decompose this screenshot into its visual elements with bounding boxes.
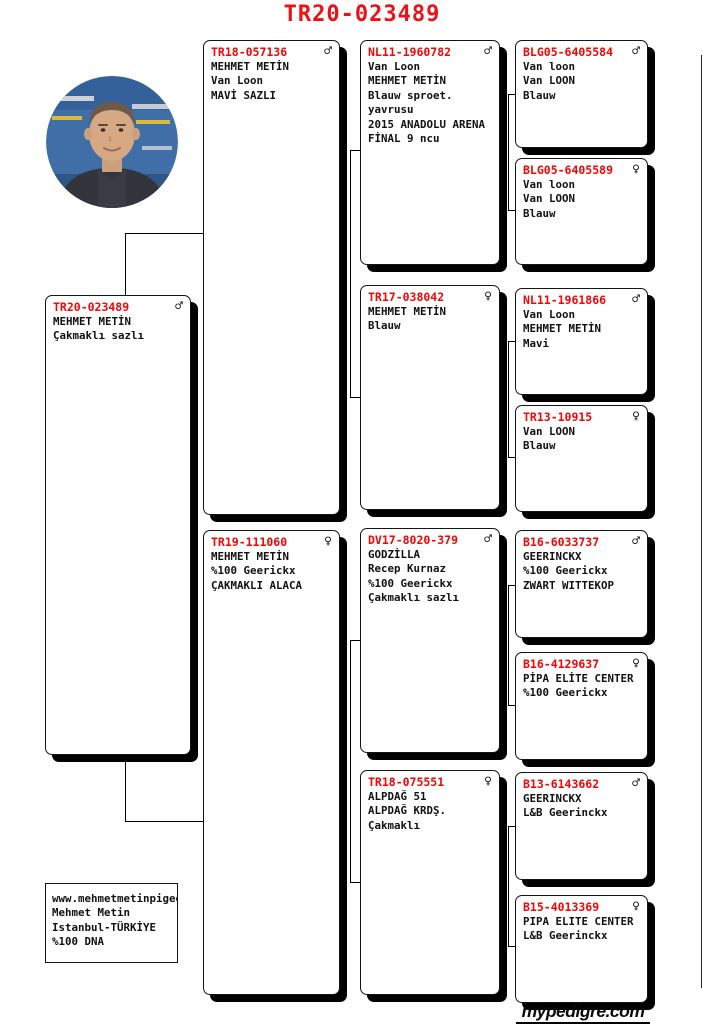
pedigree-lines: GEERINCKX%100 GeerickxZWART WITTEKOP [523, 550, 640, 593]
pedigree-lines: MEHMET METİNBlauw [368, 305, 492, 334]
pedigree-line: GEERINCKX [523, 550, 640, 564]
pedigree-lines: Van LoonMEHMET METİNBlauw sproet.yavrusu… [368, 60, 492, 146]
pedigree-box-g3-4: TR18-075551 ♀ ALPDAĞ 51ALPDAĞ KRDŞ.Çakma… [360, 770, 500, 995]
pedigree-line: Blauw [523, 439, 640, 453]
pedigree-line: %100 Geerickx [211, 564, 332, 578]
pedigree-line: Blauw [523, 207, 640, 221]
pedigree-line: Van LOON [523, 74, 640, 88]
pedigree-lines: PIPA ELITE CENTERL&B Geerinckx [523, 915, 640, 944]
ring-number: TR13-10915 [523, 410, 592, 425]
pedigree-lines: Van LoonMEHMET METİNMavi [523, 308, 640, 351]
pedigree-lines: Van loonVan LOONBlauw [523, 60, 640, 103]
pedigree-box-g4-6: B16-4129637 ♀ PİPA ELİTE CENTER%100 Geer… [515, 652, 648, 760]
pedigree-lines: GEERINCKXL&B Geerinckx [523, 792, 640, 821]
pedigree-box-subject: TR20-023489 ♂ MEHMET METİNÇakmaklı sazlı [45, 295, 191, 755]
owner-info-box: www.mehmetmetinpigeons.coMehmet MetinIst… [45, 883, 178, 963]
pedigree-lines: MEHMET METİNÇakmaklı sazlı [53, 315, 183, 344]
pedigree-line: ALPDAĞ KRDŞ. [368, 804, 492, 818]
pedigree-lines: GODZİLLARecep Kurnaz%100 GeerickxÇakmakl… [368, 548, 492, 606]
pedigree-line: MEHMET METİN [368, 305, 492, 319]
ring-number: TR18-075551 [368, 775, 444, 790]
page-title: TR20-023489 [0, 2, 724, 27]
breeder-photo [46, 76, 178, 208]
pedigree-lines: PİPA ELİTE CENTER%100 Geerickx [523, 672, 640, 701]
male-symbol-icon: ♂ [632, 45, 640, 59]
mypedigre-logo[interactable]: mypedigre.com [516, 1001, 650, 1024]
owner-info-lines: www.mehmetmetinpigeons.coMehmet MetinIst… [52, 892, 171, 950]
pedigree-box-g4-3: NL11-1961866 ♂ Van LoonMEHMET METİNMavi [515, 288, 648, 395]
pedigree-box-g4-5: B16-6033737 ♂ GEERINCKX%100 GeerickxZWAR… [515, 530, 648, 638]
ring-number: BLG05-6405584 [523, 45, 613, 60]
page-edge-line [701, 55, 702, 988]
pedigree-line: Van loon [523, 178, 640, 192]
pedigree-line: L&B Geerinckx [523, 929, 640, 943]
pedigree-page: TR20-023489 [0, 0, 724, 1024]
pedigree-line: GODZİLLA [368, 548, 492, 562]
pedigree-line: PIPA ELITE CENTER [523, 915, 640, 929]
female-symbol-icon: ♀ [632, 900, 640, 914]
female-symbol-icon: ♀ [484, 775, 492, 789]
pedigree-box-g3-1: NL11-1960782 ♂ Van LoonMEHMET METİNBlauw… [360, 40, 500, 265]
pedigree-line: FİNAL 9 ncu [368, 132, 492, 146]
pedigree-line: MEHMET METİN [53, 315, 183, 329]
connector-g3b-parents [508, 341, 515, 458]
connector-g3a-parents [508, 94, 515, 211]
ring-number: BLG05-6405589 [523, 163, 613, 178]
pedigree-line: Çakmaklı sazlı [53, 329, 183, 343]
pedigree-lines: ALPDAĞ 51ALPDAĞ KRDŞ.Çakmaklı [368, 790, 492, 833]
pedigree-line: MEHMET METİN [211, 60, 332, 74]
pedigree-box-sire: TR18-057136 ♂ MEHMET METİNVan LoonMAVİ S… [203, 40, 340, 515]
ring-number: TR19-111060 [211, 535, 287, 550]
pedigree-line: %100 Geerickx [523, 686, 640, 700]
pedigree-box-g3-3: DV17-8020-379 ♂ GODZİLLARecep Kurnaz%100… [360, 528, 500, 753]
pedigree-line: Mehmet Metin [52, 906, 171, 920]
pedigree-line: Mavi [523, 337, 640, 351]
pedigree-box-g4-4: TR13-10915 ♀ Van LOONBlauw [515, 405, 648, 512]
ring-number: B15-4013369 [523, 900, 599, 915]
male-symbol-icon: ♂ [632, 777, 640, 791]
pedigree-box-g4-2: BLG05-6405589 ♀ Van loonVan LOONBlauw [515, 158, 648, 265]
connector-g3c-parents [508, 585, 515, 706]
pedigree-line: Van Loon [368, 60, 492, 74]
ring-number: B16-4129637 [523, 657, 599, 672]
pedigree-line: yavrusu [368, 103, 492, 117]
pedigree-line: MEHMET METİN [211, 550, 332, 564]
ring-number: B16-6033737 [523, 535, 599, 550]
pedigree-line: 2015 ANADOLU ARENA [368, 118, 492, 132]
pedigree-line: %100 Geerickx [523, 564, 640, 578]
pedigree-line: Blauw [368, 319, 492, 333]
ring-number: NL11-1961866 [523, 293, 606, 308]
pedigree-line: %100 DNA [52, 935, 171, 949]
pedigree-line: Van Loon [211, 74, 332, 88]
pedigree-line: %100 Geerickx [368, 577, 492, 591]
breeder-photo-image [46, 76, 178, 208]
ring-number: TR17-038042 [368, 290, 444, 305]
pedigree-line: MAVİ SAZLI [211, 89, 332, 103]
pedigree-lines: MEHMET METİN%100 GeerickxÇAKMAKLI ALACA [211, 550, 332, 593]
pedigree-lines: MEHMET METİNVan LoonMAVİ SAZLI [211, 60, 332, 103]
pedigree-line: ALPDAĞ 51 [368, 790, 492, 804]
connector-dam-parents [350, 640, 360, 883]
pedigree-line: MEHMET METİN [368, 74, 492, 88]
pedigree-box-g4-8: B15-4013369 ♀ PIPA ELITE CENTERL&B Geeri… [515, 895, 648, 1003]
pedigree-line: www.mehmetmetinpigeons.co [52, 892, 171, 906]
pedigree-line: MEHMET METİN [523, 322, 640, 336]
pedigree-box-dam: TR19-111060 ♀ MEHMET METİN%100 GeerickxÇ… [203, 530, 340, 995]
female-symbol-icon: ♀ [632, 163, 640, 177]
pedigree-lines: Van loonVan LOONBlauw [523, 178, 640, 221]
connector-g3d-parents [508, 826, 515, 947]
male-symbol-icon: ♂ [632, 535, 640, 549]
pedigree-line: PİPA ELİTE CENTER [523, 672, 640, 686]
female-symbol-icon: ♀ [484, 290, 492, 304]
pedigree-line: ÇAKMAKLI ALACA [211, 579, 332, 593]
pedigree-line: Istanbul-TÜRKİYE [52, 921, 171, 935]
ring-number: TR18-057136 [211, 45, 287, 60]
pedigree-line: Van loon [523, 60, 640, 74]
pedigree-box-g4-1: BLG05-6405584 ♂ Van loonVan LOONBlauw [515, 40, 648, 148]
pedigree-line: Recep Kurnaz [368, 562, 492, 576]
pedigree-lines: Van LOONBlauw [523, 425, 640, 454]
pedigree-line: L&B Geerinckx [523, 806, 640, 820]
pedigree-line: Van Loon [523, 308, 640, 322]
pedigree-box-g3-2: TR17-038042 ♀ MEHMET METİNBlauw [360, 285, 500, 510]
female-symbol-icon: ♀ [324, 535, 332, 549]
male-symbol-icon: ♂ [324, 45, 332, 59]
pedigree-line: Van LOON [523, 425, 640, 439]
ring-number: NL11-1960782 [368, 45, 451, 60]
female-symbol-icon: ♀ [632, 410, 640, 424]
pedigree-box-g4-7: B13-6143662 ♂ GEERINCKXL&B Geerinckx [515, 772, 648, 880]
female-symbol-icon: ♀ [632, 657, 640, 671]
male-symbol-icon: ♂ [484, 45, 492, 59]
pedigree-line: ZWART WITTEKOP [523, 579, 640, 593]
ring-number: TR20-023489 [53, 300, 129, 315]
pedigree-line: Blauw [523, 89, 640, 103]
male-symbol-icon: ♂ [632, 293, 640, 307]
pedigree-line: Blauw sproet. [368, 89, 492, 103]
male-symbol-icon: ♂ [175, 300, 183, 314]
male-symbol-icon: ♂ [484, 533, 492, 547]
ring-number: B13-6143662 [523, 777, 599, 792]
pedigree-line: Van LOON [523, 192, 640, 206]
pedigree-line: GEERINCKX [523, 792, 640, 806]
pedigree-line: Çakmaklı sazlı [368, 591, 492, 605]
ring-number: DV17-8020-379 [368, 533, 458, 548]
pedigree-line: Çakmaklı [368, 819, 492, 833]
connector-sire-parents [350, 150, 360, 398]
